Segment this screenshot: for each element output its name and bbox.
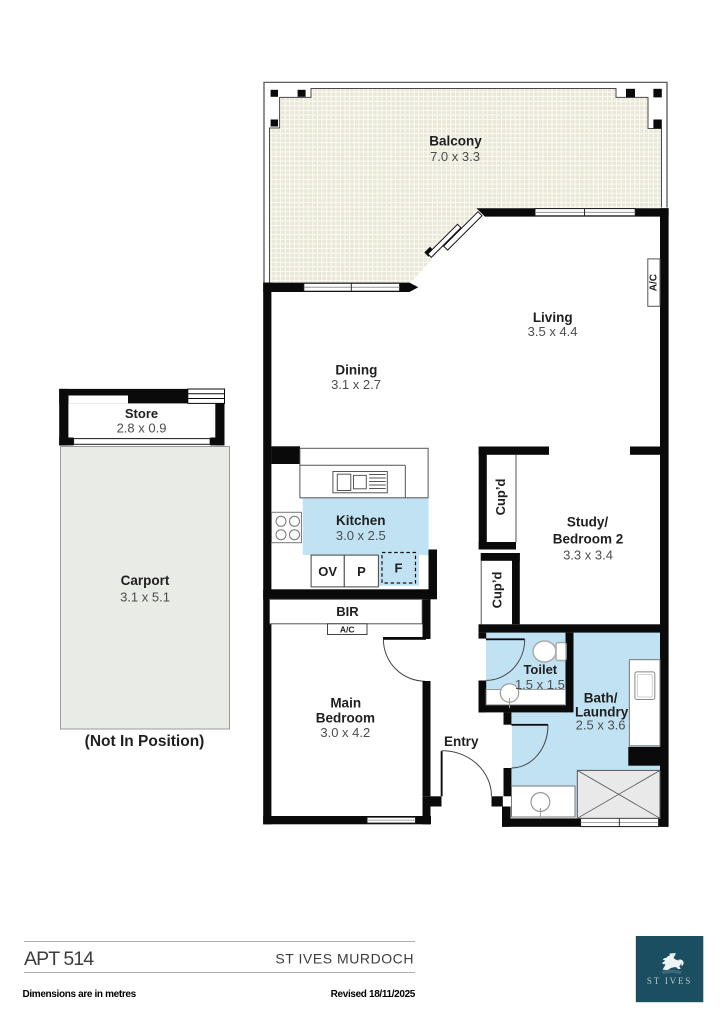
svg-text:3.3 x 3.4: 3.3 x 3.4 <box>563 548 613 563</box>
svg-text:Bedroom 2: Bedroom 2 <box>553 532 624 547</box>
svg-text:3.5 x 4.4: 3.5 x 4.4 <box>528 324 578 339</box>
svg-text:1.5 x 1.5: 1.5 x 1.5 <box>515 677 565 692</box>
svg-text:(Not In Position): (Not In Position) <box>85 733 205 750</box>
svg-text:Dimensions are in metres: Dimensions are in metres <box>23 989 137 1000</box>
svg-text:ST IVES MURDOCH: ST IVES MURDOCH <box>275 951 414 967</box>
svg-text:APT 514: APT 514 <box>24 948 94 970</box>
svg-text:3.0 x 2.5: 3.0 x 2.5 <box>336 528 386 543</box>
svg-text:7.0 x 3.3: 7.0 x 3.3 <box>430 149 480 164</box>
svg-text:Balcony: Balcony <box>429 134 482 149</box>
svg-text:Main: Main <box>330 695 361 710</box>
svg-text:A/C: A/C <box>649 274 660 291</box>
svg-text:2.5 x 3.6: 2.5 x 3.6 <box>576 718 626 733</box>
svg-text:Dining: Dining <box>335 362 377 377</box>
svg-text:Carport: Carport <box>121 573 170 588</box>
svg-text:Revised 18/11/2025: Revised 18/11/2025 <box>331 989 416 1000</box>
svg-text:Cup’d: Cup’d <box>493 479 508 516</box>
svg-text:F: F <box>395 561 403 576</box>
svg-text:Study/: Study/ <box>567 515 609 530</box>
svg-text:Toilet: Toilet <box>523 662 557 677</box>
svg-text:Cup’d: Cup’d <box>489 572 504 609</box>
svg-text:3.1 x 2.7: 3.1 x 2.7 <box>331 377 381 392</box>
svg-text:Kitchen: Kitchen <box>336 513 386 528</box>
svg-text:A/C: A/C <box>340 625 355 635</box>
svg-text:Living: Living <box>533 310 573 325</box>
svg-text:2.8 x 0.9: 2.8 x 0.9 <box>117 421 167 436</box>
svg-text:3.0 x 4.2: 3.0 x 4.2 <box>320 725 370 740</box>
svg-text:Entry: Entry <box>444 734 479 749</box>
svg-text:3.1 x 5.1: 3.1 x 5.1 <box>120 590 170 605</box>
svg-text:P: P <box>357 564 366 579</box>
svg-text:Bedroom: Bedroom <box>316 711 375 726</box>
svg-text:Store: Store <box>125 406 158 421</box>
svg-text:BIR: BIR <box>336 604 359 619</box>
svg-text:OV: OV <box>318 564 337 579</box>
svg-text:ST IVES: ST IVES <box>647 976 692 986</box>
